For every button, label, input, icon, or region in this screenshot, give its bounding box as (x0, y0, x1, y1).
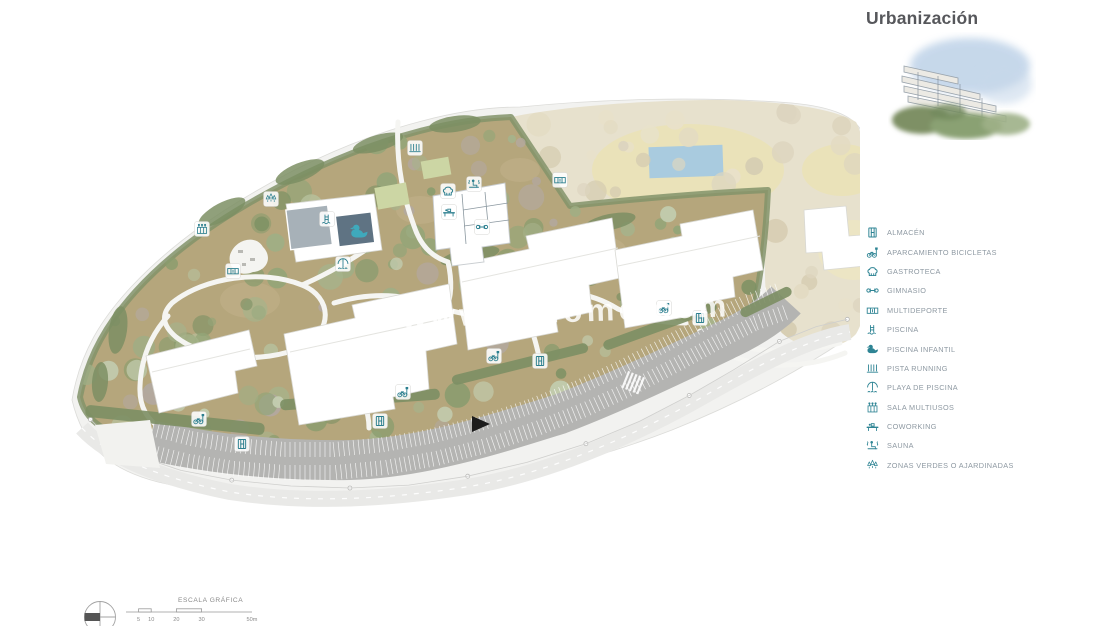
map-marker-gastroteca (441, 184, 456, 199)
site-plan-page: www.orhome.com Urbanización (0, 0, 1110, 626)
almacen-icon (866, 226, 879, 239)
legend: ALMACÉN APARCAMIENTO BICICLETAS GASTROTE… (866, 223, 1014, 475)
map-marker-sauna (467, 177, 482, 192)
sports-court-icon (866, 304, 879, 317)
dumbbell-icon (866, 284, 879, 297)
scale-title: ESCALA GRÁFICA (178, 595, 243, 604)
scale-ticks: 5 10 20 30 50m (137, 617, 258, 623)
map-marker-sala-multiusos (195, 222, 210, 237)
map-marker-bicicletas (487, 349, 502, 364)
plaza (95, 420, 160, 468)
legend-item-gimnasio: GIMNASIO (866, 281, 1014, 300)
umbrella-icon (866, 381, 879, 394)
running-track-icon (866, 362, 879, 375)
map-marker-coworking (442, 205, 457, 220)
svg-text:10: 10 (148, 617, 154, 623)
pool-ladder-icon (866, 323, 879, 336)
legend-item-sauna: SAUNA (866, 436, 1014, 455)
map-marker-bicicletas (396, 385, 411, 400)
map-marker-almacen (533, 354, 548, 369)
bicycle-icon (866, 246, 879, 259)
legend-item-coworking: COWORKING (866, 417, 1014, 436)
pool (648, 145, 723, 179)
map-marker-piscina (320, 212, 335, 227)
legend-item-zonas-verdes: ZONAS VERDES O AJARDINADAS (866, 456, 1014, 475)
map-marker-playa-piscina (336, 257, 351, 272)
svg-text:20: 20 (173, 617, 179, 623)
map-marker-bicicletas (657, 301, 672, 316)
map-marker-almacen (693, 311, 708, 326)
multiuse-room-icon (866, 401, 879, 414)
scale-bar: ESCALA GRÁFICA 5 10 20 30 50m (78, 588, 288, 626)
building-rendering (888, 32, 1036, 140)
map-marker-pista-running (408, 141, 423, 156)
legend-item-piscina: PISCINA (866, 320, 1014, 339)
legend-item-sala-multiusos: SALA MULTIUSOS (866, 398, 1014, 417)
map-marker-multideporte (553, 173, 568, 188)
svg-text:30: 30 (198, 617, 204, 623)
duck-icon (866, 343, 879, 356)
map-marker-multideporte (226, 264, 241, 279)
legend-item-almacen: ALMACÉN (866, 223, 1014, 242)
page-title: Urbanización (866, 8, 1110, 29)
chef-hat-icon (866, 265, 879, 278)
sauna-icon (866, 439, 879, 452)
map-marker-gimnasio (475, 220, 490, 235)
legend-item-gastroteca: GASTROTECA (866, 262, 1014, 281)
north-compass (85, 602, 116, 626)
svg-text:5: 5 (137, 617, 140, 623)
map-marker-almacen (373, 414, 388, 429)
legend-item-multideporte: MULTIDEPORTE (866, 301, 1014, 320)
info-panel: Urbanización (860, 0, 1110, 626)
map-marker-bicicletas (192, 412, 207, 427)
clubhouse (286, 194, 382, 262)
legend-item-bicicletas: APARCAMIENTO BICICLETAS (866, 242, 1014, 261)
svg-text:50m: 50m (247, 617, 258, 623)
legend-item-piscina-infantil: PISCINA INFANTIL (866, 339, 1014, 358)
desk-icon (866, 420, 879, 433)
legend-item-pista-running: PISTA RUNNING (866, 359, 1014, 378)
legend-item-playa-piscina: PLAYA DE PISCINA (866, 378, 1014, 397)
map-marker-zonas-verdes (264, 192, 279, 207)
trees-icon (866, 459, 879, 472)
map-marker-almacen (235, 437, 250, 452)
